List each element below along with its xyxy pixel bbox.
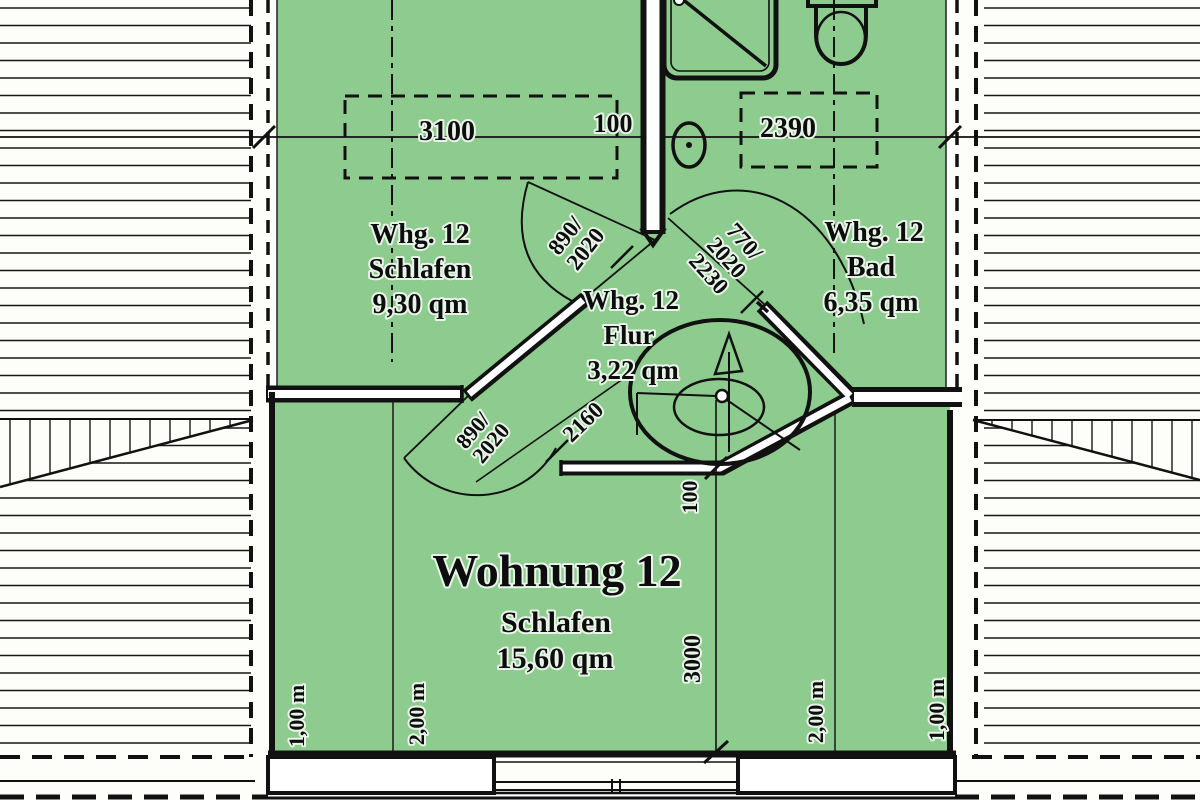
room-bad-area: 6,35 qm — [824, 287, 919, 318]
roof-hatch-left — [0, 8, 251, 743]
dim-3100: 3100 — [419, 116, 475, 147]
room-schlafen-top-name: Schlafen — [369, 254, 472, 285]
bottom-wall-block-right — [738, 757, 955, 793]
height-right-inner: 2,00 m — [803, 681, 828, 743]
room-flur-whg: Whg. 12 — [583, 285, 679, 315]
bottom-wall-block-left — [268, 757, 494, 793]
dim-100-stair: 100 — [677, 481, 702, 514]
svg-text:3000: 3000 — [680, 635, 706, 683]
svg-text:100: 100 — [677, 481, 702, 514]
shower-drain-icon — [674, 0, 684, 5]
floorplan-page: Whg. 12 Schlafen 9,30 qm Whg. 12 Flur 3,… — [0, 0, 1200, 800]
dim-2390: 2390 — [760, 113, 816, 144]
stair-center-post — [716, 390, 728, 402]
room-main-area: 15,60 qm — [497, 642, 614, 675]
room-schlafen-top-area: 9,30 qm — [373, 289, 468, 320]
height-left-inner: 2,00 m — [404, 683, 429, 745]
roof-hatch-right — [984, 8, 1200, 743]
room-schlafen-top-whg: Whg. 12 — [370, 219, 470, 250]
svg-text:2,00 m: 2,00 m — [803, 681, 828, 743]
height-right-outer: 1,00 m — [924, 679, 949, 741]
svg-text:2,00 m: 2,00 m — [404, 683, 429, 745]
svg-text:1,00 m: 1,00 m — [924, 679, 949, 741]
room-flur-name: Flur — [604, 320, 655, 350]
room-main-name: Schlafen — [501, 606, 611, 639]
bottom-facade — [268, 757, 956, 798]
room-bad-whg: Whg. 12 — [824, 217, 924, 248]
room-main-title: Wohnung 12 — [432, 545, 681, 596]
floorplan-svg: Whg. 12 Schlafen 9,30 qm Whg. 12 Flur 3,… — [0, 0, 1200, 800]
height-left-outer: 1,00 m — [284, 685, 309, 747]
svg-text:1,00 m: 1,00 m — [284, 685, 309, 747]
dim-3000: 3000 — [680, 635, 706, 683]
room-bad-name: Bad — [847, 252, 896, 283]
washbasin-drain-icon — [686, 142, 692, 148]
dim-100-top: 100 — [594, 109, 633, 138]
room-flur-area: 3,22 qm — [587, 355, 679, 385]
